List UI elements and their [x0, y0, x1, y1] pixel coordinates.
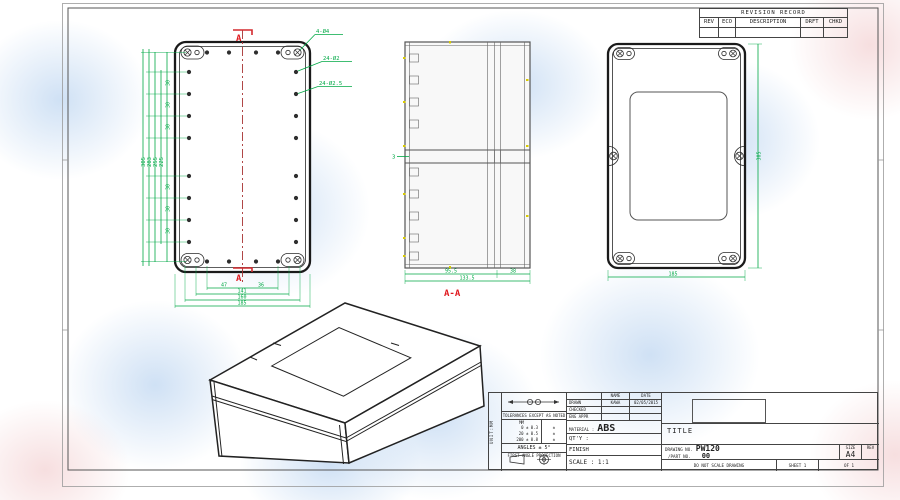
title-label: TITLE	[662, 424, 879, 435]
col-drft: DRFT	[801, 18, 824, 28]
svg-text:133.5: 133.5	[459, 276, 474, 282]
first-angle-symbol	[502, 454, 565, 465]
logo-box	[692, 399, 766, 423]
callout-holes-a: 24-Ø2	[323, 55, 340, 62]
revision-table-header: REV ECO DESCRIPTION DRFT CHKD	[700, 18, 847, 28]
section-bottom-dims: 95.5 38 133.5	[405, 269, 530, 285]
col-chkd: CHKD	[824, 18, 847, 28]
section-letter-top: A	[236, 34, 242, 44]
drawing-sheet: A A 305 283 255 225 3	[0, 0, 900, 500]
svg-text:30: 30	[166, 228, 172, 234]
callout-corner-holes: 4-Ø4	[316, 28, 330, 35]
material-label: MATERIAL :	[569, 427, 594, 432]
scale-label: SCALE : 1:1	[567, 456, 661, 466]
col-rev: REV	[700, 18, 719, 28]
back-view: 185 305	[608, 44, 763, 281]
rev-label: REV	[862, 445, 879, 450]
angles-tolerance: ANGLES ± 5°	[502, 444, 566, 452]
isometric-view	[210, 303, 484, 464]
svg-text:225: 225	[159, 157, 165, 167]
section-view: 3 95.5 38 133.5 A-A	[392, 41, 530, 299]
svg-text:185: 185	[237, 301, 246, 307]
svg-text:30: 30	[166, 206, 172, 212]
title-block: UNIT:MM TOLERANCES EXCEPT AS NOTED MM 0 …	[488, 392, 878, 470]
qty-label: QT'Y :	[567, 434, 661, 442]
svg-text:38: 38	[510, 269, 516, 275]
svg-text:185: 185	[668, 272, 677, 278]
do-not-scale-note: DO NOT SCALE DRAWING	[662, 460, 776, 471]
tolerances-title: TOLERANCES EXCEPT AS NOTED	[502, 412, 566, 419]
unit-strip: UNIT:MM	[489, 393, 501, 471]
callout-holes-b: 24-Ø2.5	[319, 80, 342, 87]
vertical-dims: 305 283 255 225 30 30 30 30 30 30	[141, 49, 172, 266]
revision-table: REVISION RECORD REV ECO DESCRIPTION DRFT…	[699, 8, 848, 38]
dimension-symbol	[502, 393, 565, 409]
svg-text:95.5: 95.5	[445, 269, 457, 275]
section-view-label: A-A	[444, 289, 461, 299]
dim-wall: 3	[392, 155, 395, 161]
size-value: A4	[840, 450, 861, 459]
svg-text:305: 305	[757, 151, 763, 160]
col-description: DESCRIPTION	[736, 18, 801, 28]
svg-text:30: 30	[166, 184, 172, 190]
svg-text:30: 30	[166, 80, 172, 86]
sheet-of-label: OF 1	[819, 460, 879, 471]
svg-text:30: 30	[166, 102, 172, 108]
col-eco: ECO	[719, 18, 736, 28]
sheet-label: SHEET 1	[777, 460, 818, 471]
revision-table-empty-row	[700, 28, 847, 37]
material-value: ABS	[597, 423, 615, 433]
svg-text:36: 36	[258, 283, 264, 289]
svg-text:47: 47	[221, 283, 227, 289]
revision-table-title: REVISION RECORD	[700, 9, 847, 18]
finish-label: FINISH	[567, 445, 661, 453]
section-letter-bottom: A	[236, 274, 242, 284]
part-no-value: 00	[694, 452, 710, 459]
svg-text:30: 30	[166, 124, 172, 130]
drawing-no-label: DRAWING NO.	[665, 447, 693, 452]
front-view: A A 305 283 255 225 3	[141, 28, 352, 308]
